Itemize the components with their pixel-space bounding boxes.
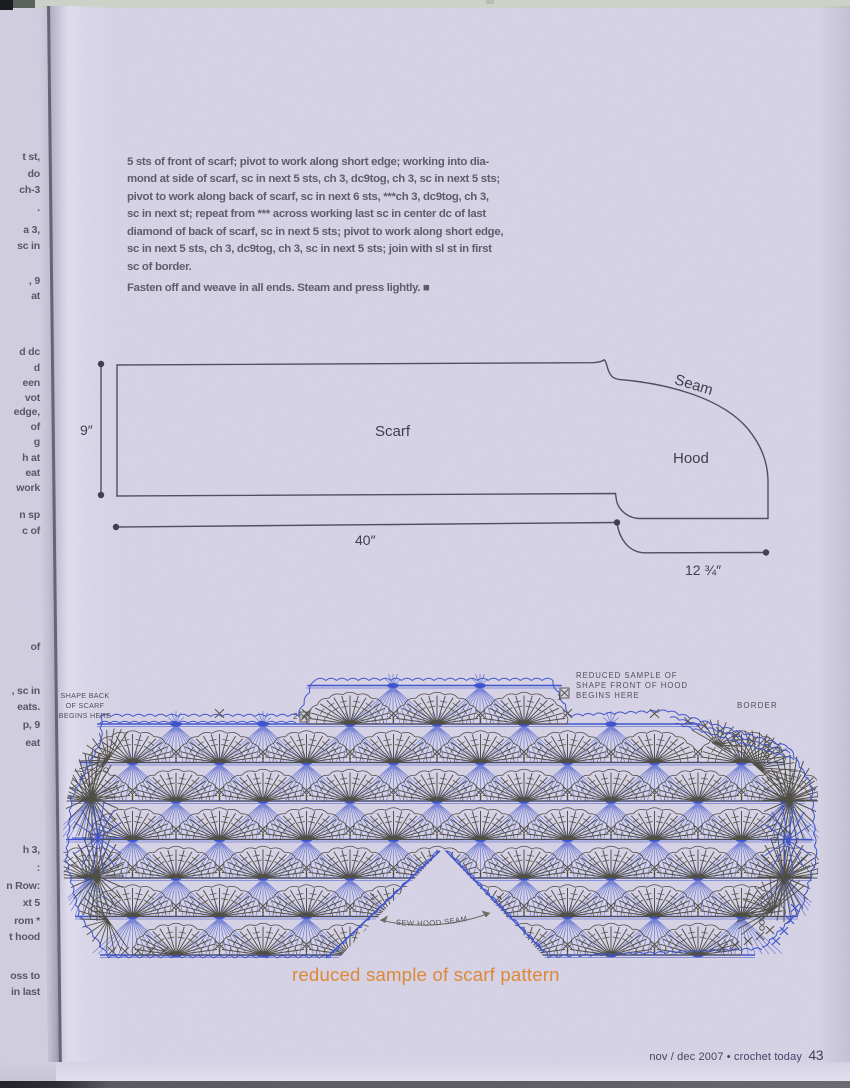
svg-text:1: 1 (557, 692, 562, 702)
svg-text:2: 2 (497, 894, 502, 904)
svg-text:SEW HOOD SEAM: SEW HOOD SEAM (396, 914, 469, 928)
svg-text:5: 5 (772, 835, 777, 845)
svg-text:2: 2 (737, 913, 742, 923)
svg-text:9: 9 (776, 745, 781, 755)
svg-text:2: 2 (293, 711, 298, 721)
svg-text:2: 2 (370, 892, 375, 902)
